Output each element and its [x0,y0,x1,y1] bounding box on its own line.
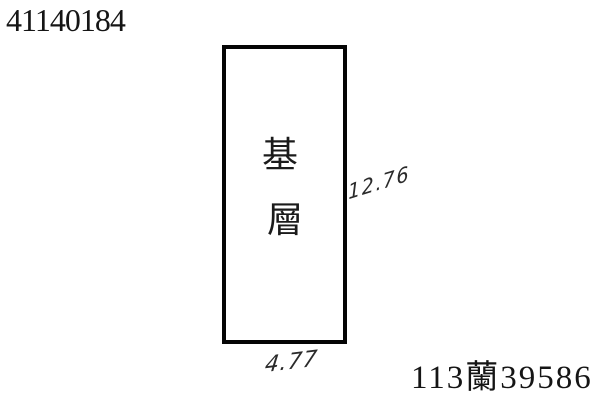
reference-number: 113蘭39586 [411,362,593,395]
building-label-char-1: 基 [262,137,298,173]
survey-document-page: 41140184 基 層 12.76 4.77 113蘭39586 [0,0,601,400]
building-label-char-2: 層 [267,202,303,238]
dimension-right-side: 12.76 [347,163,410,203]
building-outline: 基 層 [222,45,347,344]
case-number: 41140184 [6,4,125,36]
dimension-bottom-side: 4.77 [264,348,319,377]
